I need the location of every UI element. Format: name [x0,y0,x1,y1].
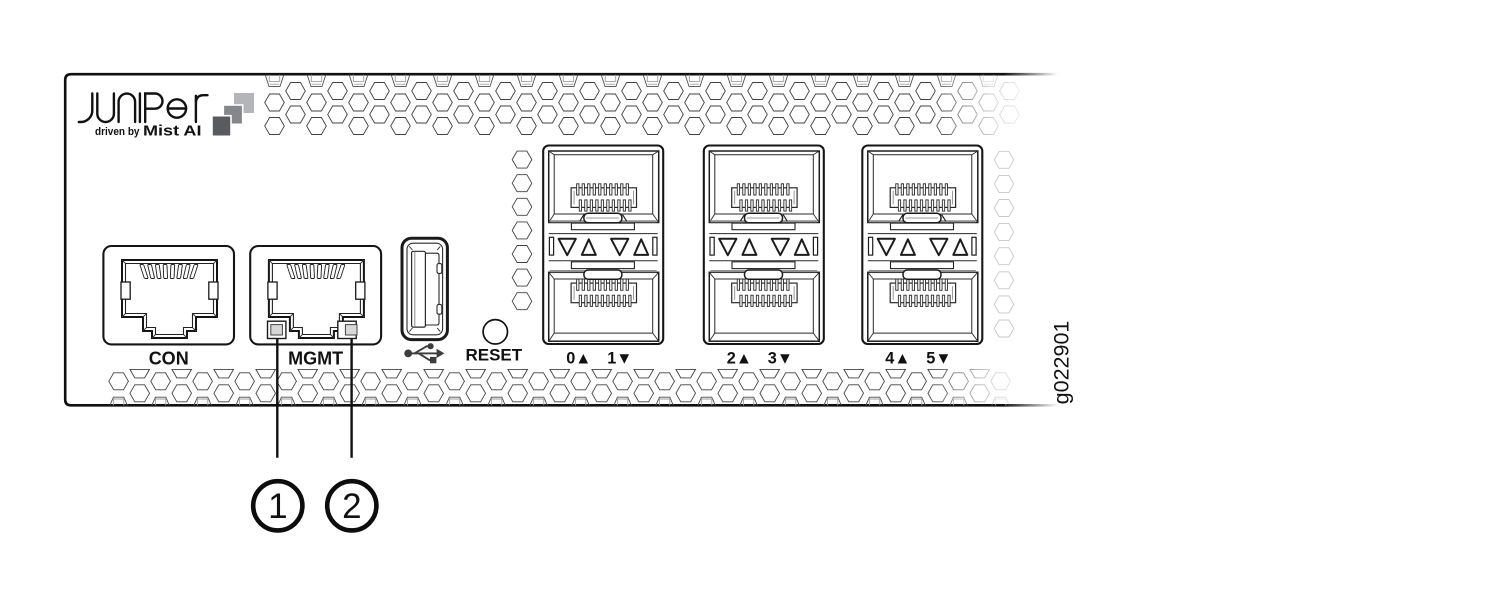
svg-text:3▼: 3▼ [768,350,793,368]
svg-text:4▲: 4▲ [885,350,910,368]
svg-text:2: 2 [342,487,361,526]
svg-text:RESET: RESET [465,345,522,364]
svg-text:2▲: 2▲ [727,350,752,368]
svg-text:5▼: 5▼ [926,350,951,368]
svg-text:CON: CON [149,349,189,369]
svg-text:g022901: g022901 [1049,321,1073,405]
svg-text:1▼: 1▼ [607,350,632,368]
svg-text:1: 1 [268,487,287,526]
svg-text:Mist AI: Mist AI [143,123,202,140]
svg-text:MGMT: MGMT [288,349,343,369]
svg-text:driven by: driven by [95,126,140,138]
svg-text:0▲: 0▲ [566,350,591,368]
